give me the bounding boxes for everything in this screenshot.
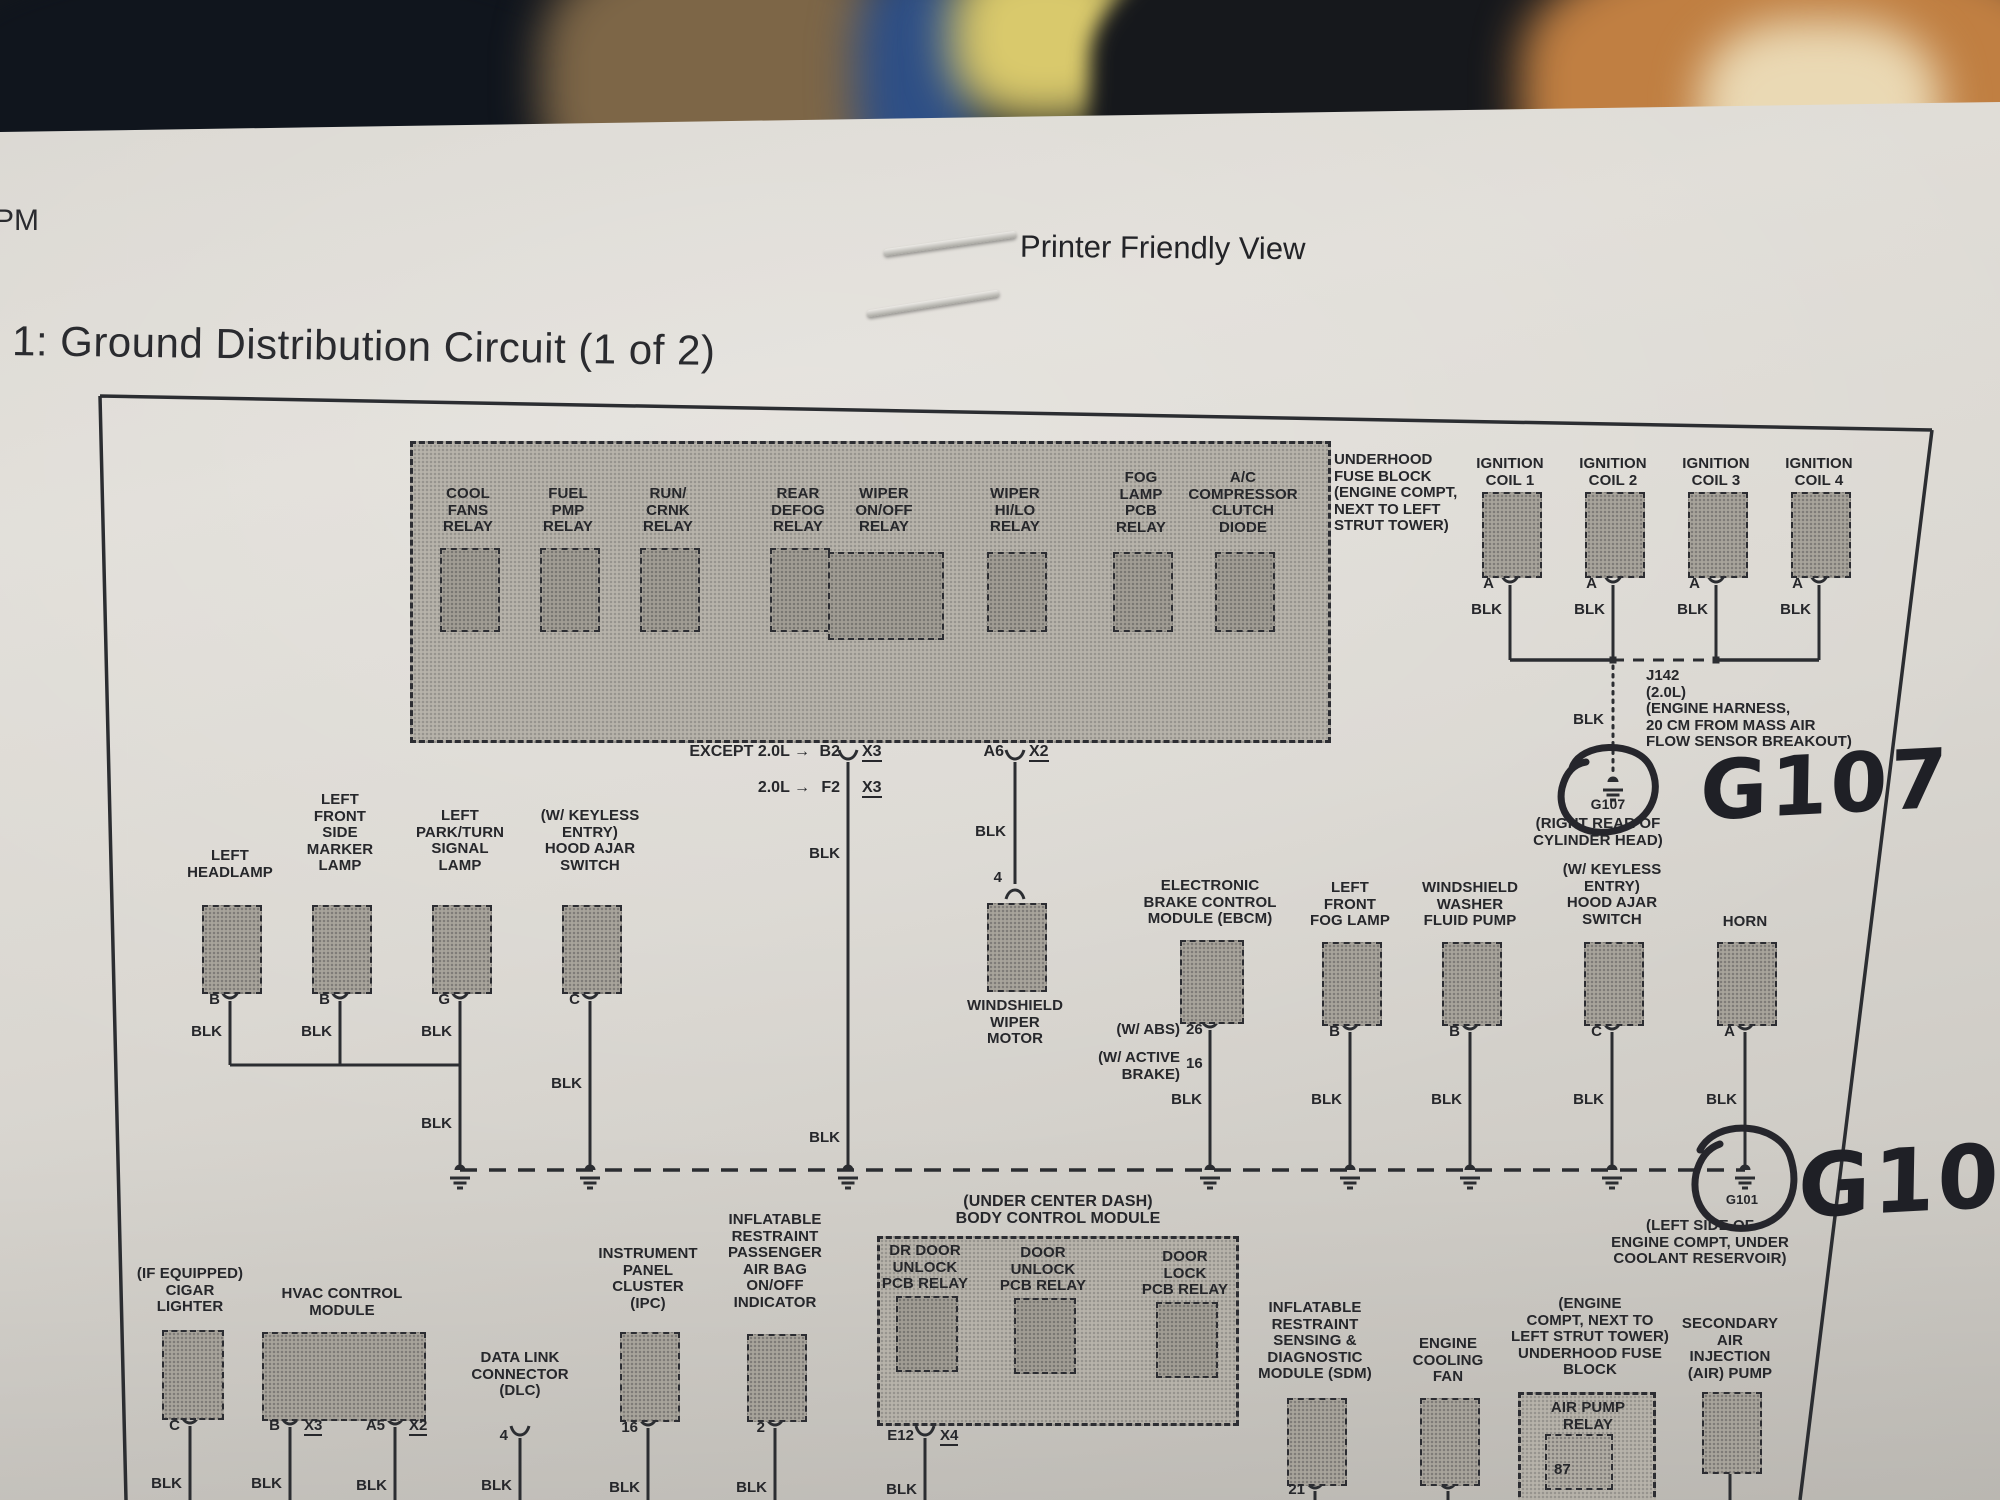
fog-wire-color: BLK [1302,1092,1342,1109]
door-unlock-pcb-relay-box [1014,1298,1076,1374]
sdm-label: INFLATABLE RESTRAINT SENSING & DIAGNOSTI… [1240,1300,1390,1383]
airbag-indicator-box [747,1334,807,1422]
headlamp-wire-color: BLK [182,1024,222,1041]
hoodajar1-wire-color: BLK [542,1076,582,1093]
coil1-pin: A [1468,576,1494,593]
coil2-wire-color: BLK [1565,602,1605,619]
run-crnk-relay-box [640,548,700,632]
x3-connector-b: X3 [862,780,882,797]
g101-printed-id: G101 [1707,1192,1777,1209]
door-lock-pcb-relay-box [1156,1302,1218,1378]
dlc-wire-color: BLK [470,1478,512,1495]
ebcm-abs-variant: (W/ ABS) [1080,1022,1180,1039]
horn-pin: A [1707,1024,1735,1041]
wiper-onoff-relay-box [828,552,944,640]
coil1-wire-color: BLK [1462,602,1502,619]
engine-cooling-fan-box [1420,1398,1480,1486]
f2-terminal: F2 [808,780,840,797]
horn-label: HORN [1700,914,1790,931]
door-lock-relay-label: DOOR LOCK PCB RELAY [1135,1249,1235,1299]
hvac-wire-color-1: BLK [240,1476,282,1493]
bcm-header-label: (UNDER CENTER DASH) BODY CONTROL MODULE [918,1194,1198,1227]
cigar-pin: C [150,1418,180,1435]
side-marker-lamp-label: LEFT FRONT SIDE MARKER LAMP [290,792,390,875]
lamps-ground-wire-color: BLK [412,1116,452,1133]
hood-ajar-switch-2-label: (W/ KEYLESS ENTRY) HOOD AJAR SWITCH [1547,862,1677,928]
bcm-wire-color: BLK [875,1482,917,1499]
ignition-coil-3-label: IGNITION COIL 3 [1670,456,1762,489]
hvac-x3-connector: X3 [304,1418,322,1435]
fog-lamp-label: LEFT FRONT FOG LAMP [1295,880,1405,930]
hvac-pin-a5: A5 [351,1418,385,1435]
hvac-x2-connector: X2 [409,1418,427,1435]
coil4-wire-color: BLK [1771,602,1811,619]
fog-lamp-pcb-relay-label: FOG LAMP PCB RELAY [1096,470,1186,536]
hvac-label: HVAC CONTROL MODULE [252,1286,432,1319]
hvac-wire-color-2: BLK [345,1478,387,1495]
ebcm-label: ELECTRONIC BRAKE CONTROL MODULE (EBCM) [1115,878,1305,928]
park-turn-lamp-label: LEFT PARK/TURN SIGNAL LAMP [400,808,520,874]
dr-door-unlock-pcb-relay-box [896,1296,958,1372]
washer-pump-label: WINDSHIELD WASHER FLUID PUMP [1405,880,1535,930]
ebcm-active-brake-variant: (W/ ACTIVE BRAKE) [1030,1050,1180,1083]
cool-fans-relay-box [440,548,500,632]
ebcm-wire-color: BLK [1162,1092,1202,1109]
rear-defog-relay-label: REAR DEFOG RELAY [753,486,843,536]
parkturn-wire-color: BLK [412,1024,452,1041]
ipc-box [620,1332,680,1422]
door-unlock-relay-label: DOOR UNLOCK PCB RELAY [993,1245,1093,1295]
g107-printed-id: G107 [1573,796,1643,813]
left-headlamp-label: LEFT HEADLAMP [175,848,285,881]
ignition-coil-3-box [1688,492,1748,578]
hvac-pin-b: B [250,1418,280,1435]
coil2-pin: A [1571,576,1597,593]
b2-wire-color-lower: BLK [800,1130,840,1147]
coil4-pin: A [1777,576,1803,593]
only-20l-exit-label: 2.0L → [660,780,810,797]
bcm-e12-terminal: E12 [876,1428,914,1445]
sdm-box [1287,1398,1347,1486]
photo-of-wiring-diagram: PM Printer Friendly View 1: Ground Distr… [0,0,2000,1500]
left-park-turn-signal-lamp-box [432,905,492,994]
marker-wire-color: BLK [292,1024,332,1041]
hoodajar2-wire-color: BLK [1564,1092,1604,1109]
coil3-wire-color: BLK [1668,602,1708,619]
ignition-coil-1-label: IGNITION COIL 1 [1464,456,1556,489]
rear-defog-relay-box [770,548,830,632]
ignition-coil-2-label: IGNITION COIL 2 [1567,456,1659,489]
wiper-motor-wire-color: BLK [966,824,1006,841]
bcm-x4-connector: X4 [940,1428,958,1445]
hood-ajar-switch-1-box [562,905,622,994]
g107-wire-color: BLK [1564,712,1604,729]
air-pump-relay-label: AIR PUMP RELAY [1533,1400,1643,1433]
wiper-motor-label: WINDSHIELD WIPER MOTOR [950,998,1080,1048]
hood-ajar-switch-1-label: (W/ KEYLESS ENTRY) HOOD AJAR SWITCH [525,808,655,874]
parkturn-pin: G [422,992,450,1009]
hvac-control-module-box [262,1332,426,1421]
marker-pin: B [302,992,330,1009]
a6-terminal: A6 [968,744,1004,761]
fuel-pmp-relay-label: FUEL PMP RELAY [523,486,613,536]
airbag-pin: 2 [739,1420,765,1437]
g101-handwritten-note: G101 [1797,1121,2000,1238]
x3-connector-a: X3 [862,744,882,761]
secondary-air-pump-label: SECONDARY AIR INJECTION (AIR) PUMP [1660,1316,1800,1382]
cigar-lighter-box [162,1330,224,1420]
g107-handwritten-note: G107 [1699,731,1951,839]
ipc-wire-color: BLK [598,1480,640,1497]
sdm-pin: 21 [1275,1482,1305,1499]
washer-pump-pin: B [1432,1024,1460,1041]
b2-terminal: B2 [808,744,840,761]
headlamp-pin: B [192,992,220,1009]
windshield-washer-fluid-pump-box [1442,942,1502,1026]
b2-wire-color-upper: BLK [800,846,840,863]
ipc-label: INSTRUMENT PANEL CLUSTER (IPC) [583,1246,713,1312]
g107-location-caption: (RIGHT REAR OF CYLINDER HEAD) [1508,816,1688,849]
run-crnk-relay-label: RUN/ CRNK RELAY [623,486,713,536]
cigar-wire-color: BLK [140,1476,182,1493]
horn-box [1717,942,1777,1026]
windshield-wiper-motor-box [987,903,1047,992]
airbag-wire-color: BLK [725,1480,767,1497]
left-front-side-marker-lamp-box [312,905,372,994]
left-headlamp-box [202,905,262,994]
hoodajar1-pin: C [552,992,580,1009]
ignition-coil-2-box [1585,492,1645,578]
horn-wire-color: BLK [1697,1092,1737,1109]
air-pump-relay-pin: 87 [1554,1462,1582,1479]
fog-lamp-pcb-relay-box [1113,552,1173,632]
coil3-pin: A [1674,576,1700,593]
ebcm-active-brake-pin: 16 [1186,1056,1216,1073]
wiper-motor-pin: 4 [978,870,1002,887]
cool-fans-relay-label: COOL FANS RELAY [423,486,513,536]
dlc-label: DATA LINK CONNECTOR (DLC) [445,1350,595,1400]
ebcm-box [1180,940,1244,1024]
washer-wire-color: BLK [1422,1092,1462,1109]
wiper-onoff-relay-label: WIPER ON/OFF RELAY [839,486,929,536]
ipc-pin: 16 [606,1420,638,1437]
fog-lamp-pin: B [1312,1024,1340,1041]
hoodajar2-pin: C [1574,1024,1602,1041]
left-front-fog-lamp-box [1322,942,1382,1026]
wiper-hilo-relay-label: WIPER HI/LO RELAY [970,486,1060,536]
cooling-fan-label: ENGINE COOLING FAN [1398,1336,1498,1386]
ignition-coil-4-label: IGNITION COIL 4 [1773,456,1865,489]
except-20l-exit-label: EXCEPT 2.0L → [610,744,810,761]
ignition-coil-4-box [1791,492,1851,578]
secondary-air-pump-box [1702,1392,1762,1474]
ac-diode-label: A/C COMPRESSOR CLUTCH DIODE [1178,470,1308,536]
ac-compressor-clutch-diode-box [1215,552,1275,632]
wiper-hilo-relay-box [987,552,1047,632]
x2-connector: X2 [1029,744,1049,761]
airbag-indicator-label: INFLATABLE RESTRAINT PASSENGER AIR BAG O… [710,1212,840,1311]
ebcm-abs-pin: 26 [1186,1022,1216,1039]
cigar-lighter-label: (IF EQUIPPED) CIGAR LIGHTER [120,1266,260,1316]
fuel-pmp-relay-box [540,548,600,632]
dr-door-unlock-relay-label: DR DOOR UNLOCK PCB RELAY [875,1243,975,1293]
hood-ajar-switch-2-box [1584,942,1644,1026]
g101-location-caption: (LEFT SIDE OF ENGINE COMPT, UNDER COOLAN… [1575,1218,1825,1268]
dlc-pin: 4 [482,1428,508,1445]
